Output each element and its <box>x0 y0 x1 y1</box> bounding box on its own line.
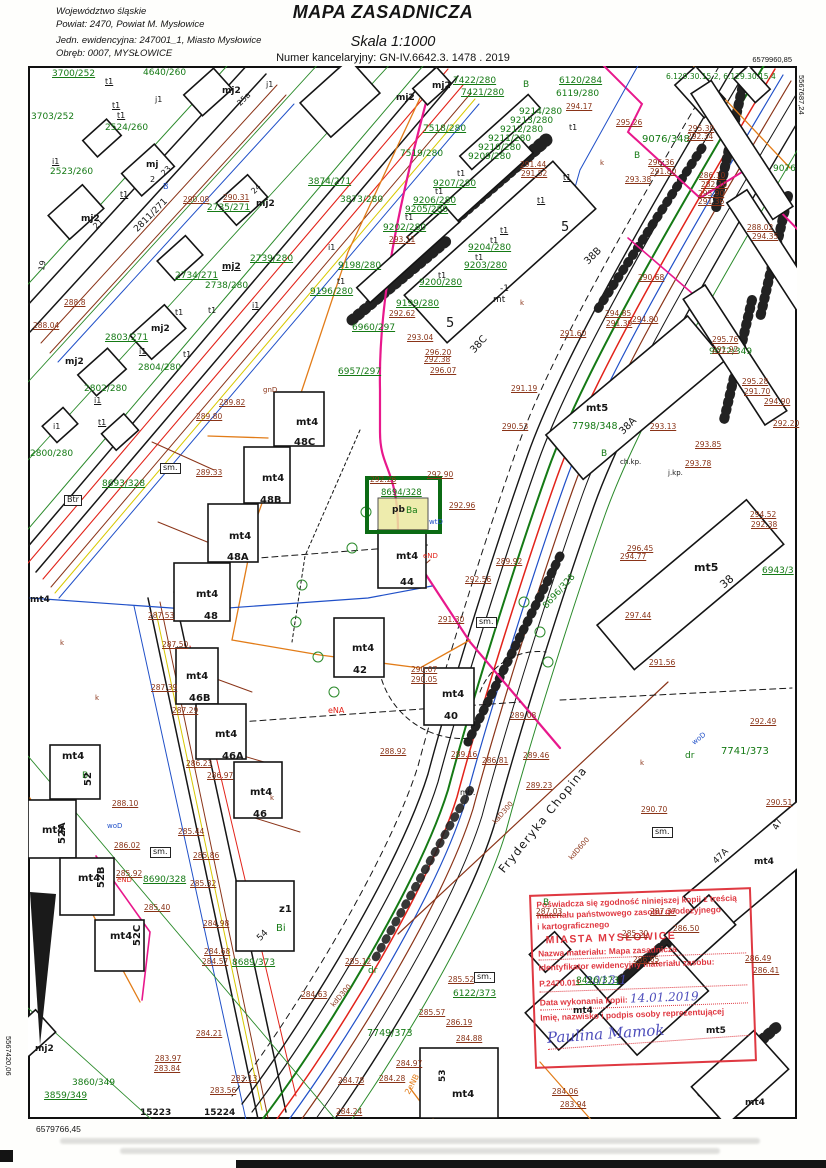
edge-coordinate-left: 5567420,06 <box>4 1036 13 1076</box>
stamp-id-handwritten: 2013.1 <box>585 973 627 988</box>
scan-smudge <box>60 1138 760 1144</box>
corner-coordinate-top-right: 6579960,85 <box>752 55 792 64</box>
scanned-map-page: { "header": { "region_lines": [ "Wojewód… <box>0 0 826 1168</box>
map-scale: Skala 1:1000 <box>0 34 786 50</box>
map-title: MAPA ZASADNICZA <box>0 2 766 23</box>
certification-stamp: Poświadcza się zgodność niniejszej kopii… <box>529 887 757 1069</box>
stamp-date-label: Data wykonania kopii: <box>540 994 628 1007</box>
scan-artifact-chip <box>0 1150 13 1162</box>
subject-parcel-highlight <box>367 478 440 532</box>
stamp-date-handwritten: 14.01.2019 <box>630 989 699 1005</box>
edge-coordinate-right: 5567687,24 <box>797 75 806 115</box>
scan-smudge <box>120 1148 720 1154</box>
scan-artifact-bar <box>236 1160 826 1168</box>
margin-wedge-mark <box>22 890 62 1050</box>
corner-coordinate-bottom-left: 6579766,45 <box>36 1124 81 1134</box>
stamp-id-printed: P.2470.011. <box>539 977 583 989</box>
registry-number: Numer kancelaryjny: GN-IV.6642.3. 1478 .… <box>0 52 786 64</box>
